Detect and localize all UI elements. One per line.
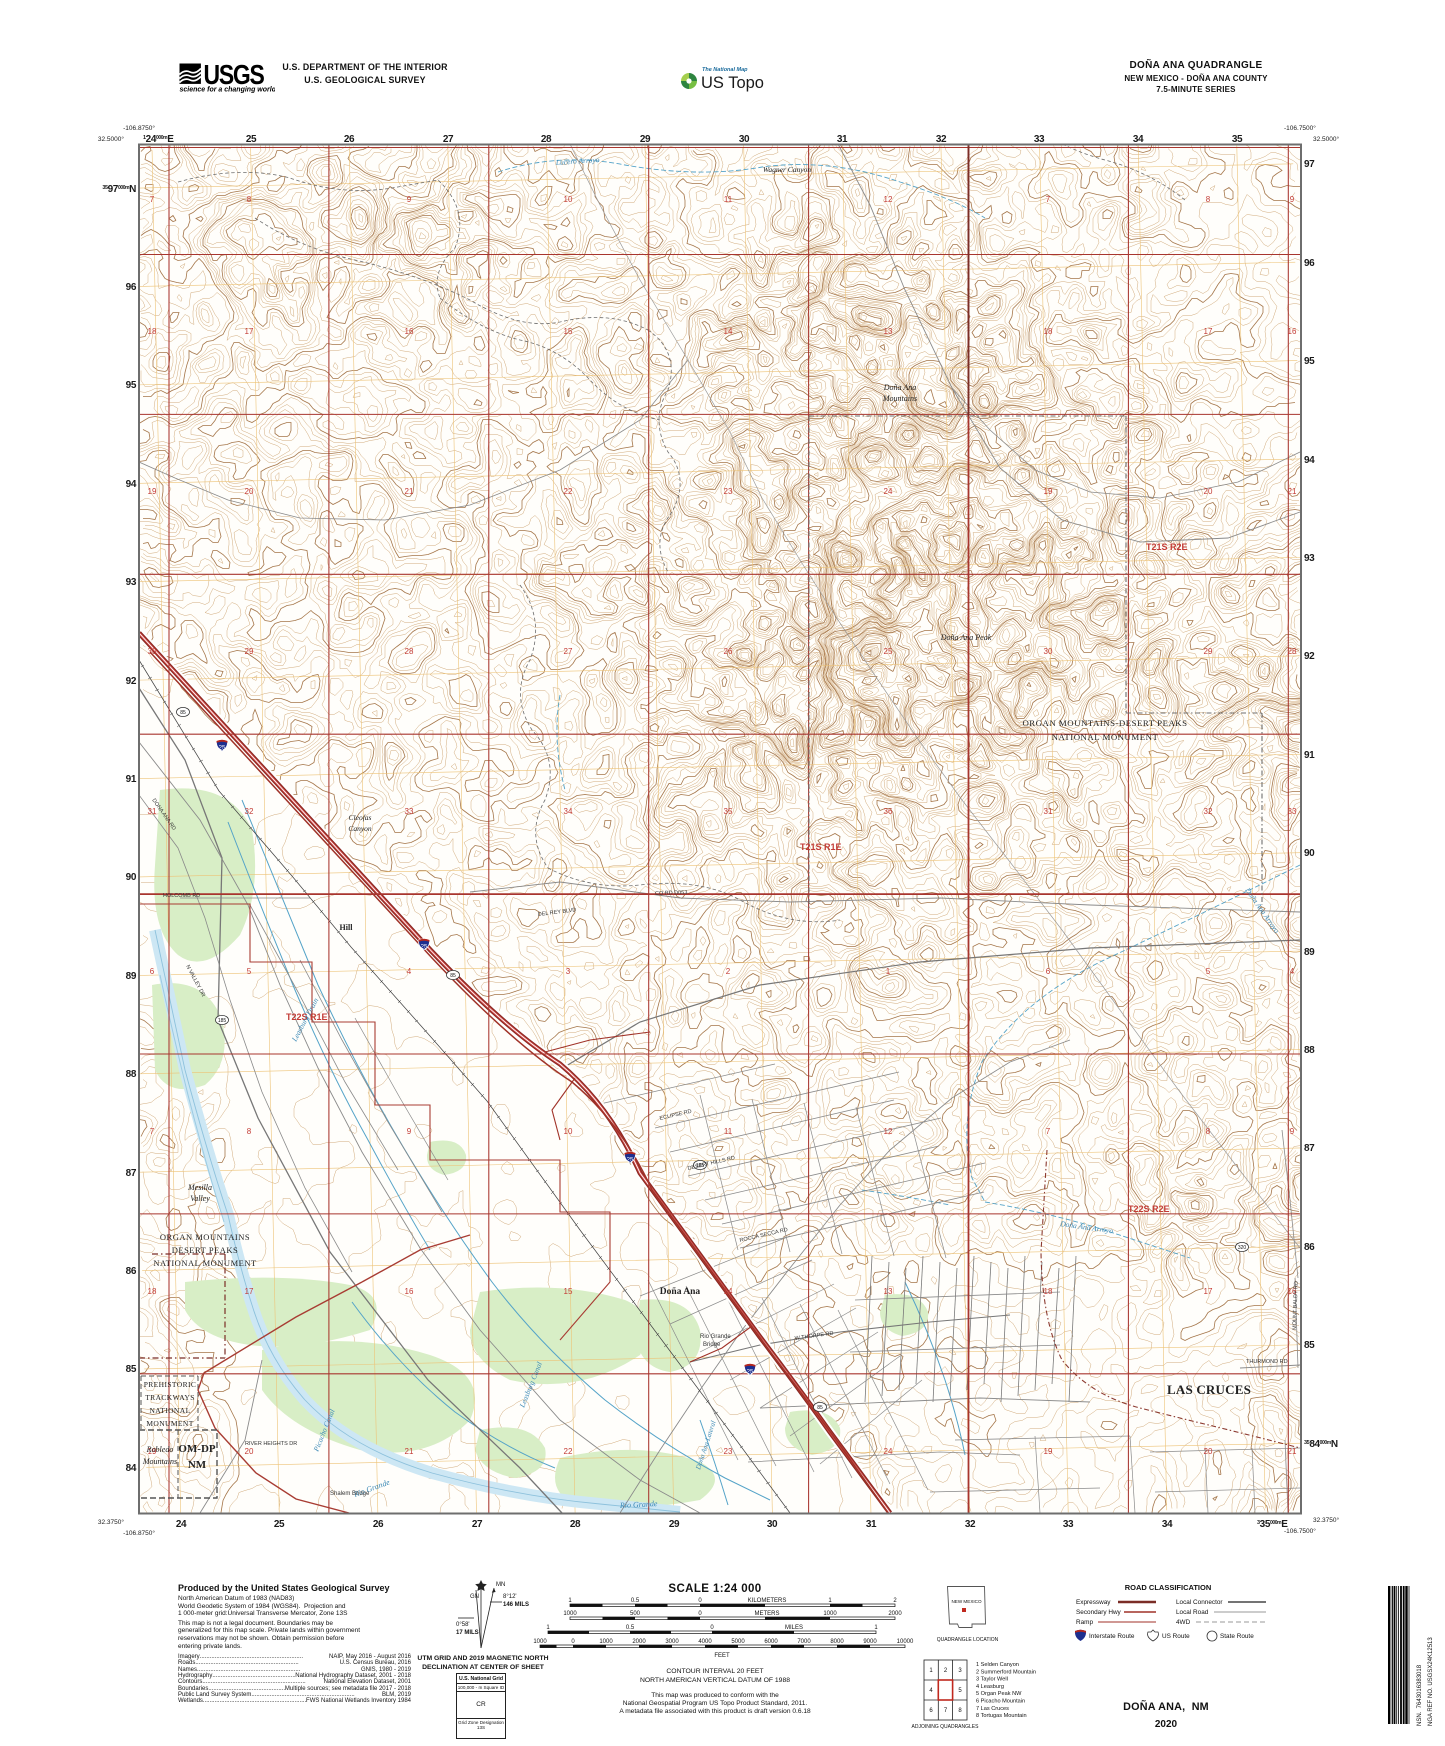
svg-text:1: 1 <box>874 1625 878 1631</box>
svg-text:OM-DP: OM-DP <box>178 1443 216 1455</box>
svg-text:24: 24 <box>884 487 893 496</box>
svg-text:2 Summerford Mountain: 2 Summerford Mountain <box>976 1669 1036 1675</box>
svg-text:11: 11 <box>724 195 733 204</box>
svg-text:5: 5 <box>247 967 252 976</box>
svg-text:Shalem Bridge: Shalem Bridge <box>330 1491 370 1497</box>
svg-text:27: 27 <box>472 1519 483 1530</box>
svg-text:9: 9 <box>407 195 412 204</box>
svg-text:7 Las Cruces: 7 Las Cruces <box>976 1706 1009 1712</box>
svg-text:8: 8 <box>1206 1127 1211 1136</box>
svg-text:35: 35 <box>724 807 733 816</box>
svg-text:9: 9 <box>1290 1127 1295 1136</box>
svg-text:Secondary Hwy: Secondary Hwy <box>1076 1609 1122 1616</box>
svg-text:16: 16 <box>405 327 414 336</box>
svg-text:1: 1 <box>568 1598 572 1604</box>
svg-text:Mesilla: Mesilla <box>187 1183 212 1192</box>
svg-text:TRACKWAYS: TRACKWAYS <box>145 1393 195 1402</box>
svg-text:0.5: 0.5 <box>631 1598 640 1604</box>
svg-text:8°12': 8°12' <box>503 1594 517 1600</box>
svg-text:NSN. 7643016383018: NSN. 7643016383018 <box>1417 1664 1423 1726</box>
svg-text:GN: GN <box>470 1594 479 1600</box>
svg-text:28: 28 <box>1288 647 1297 656</box>
svg-text:4: 4 <box>407 967 412 976</box>
svg-text:10000: 10000 <box>897 1639 914 1645</box>
svg-text:21: 21 <box>1288 1447 1297 1456</box>
svg-text:MN: MN <box>496 1582 505 1588</box>
svg-text:17 MILS: 17 MILS <box>456 1630 479 1636</box>
svg-text:17: 17 <box>1204 327 1213 336</box>
svg-text:4WD: 4WD <box>1176 1619 1191 1626</box>
svg-text:10: 10 <box>564 1127 573 1136</box>
svg-text:6000: 6000 <box>764 1639 778 1645</box>
svg-text:22: 22 <box>564 1447 573 1456</box>
svg-text:500: 500 <box>630 1611 641 1617</box>
svg-text:85: 85 <box>180 710 186 716</box>
svg-text:-106.8750°: -106.8750° <box>123 124 155 132</box>
svg-text:86: 86 <box>1304 1242 1315 1253</box>
svg-text:HOLCOMB RD: HOLCOMB RD <box>163 893 200 899</box>
svg-text:30: 30 <box>1044 647 1053 656</box>
svg-text:19: 19 <box>148 487 157 496</box>
svg-text:7000: 7000 <box>797 1639 811 1645</box>
svg-text:31: 31 <box>866 1519 877 1530</box>
svg-text:FEET: FEET <box>714 1653 730 1659</box>
svg-text:32.3750°: 32.3750° <box>1313 1516 1339 1524</box>
svg-text:20: 20 <box>1204 1447 1213 1456</box>
svg-text:1: 1 <box>929 1668 933 1674</box>
svg-text:88: 88 <box>1304 1045 1315 1056</box>
svg-text:84: 84 <box>126 1463 137 1474</box>
svg-text:4 Leasburg: 4 Leasburg <box>976 1684 1004 1690</box>
svg-text:0: 0 <box>571 1639 575 1645</box>
svg-text:320: 320 <box>1238 1245 1247 1251</box>
svg-text:0.5: 0.5 <box>626 1625 635 1631</box>
svg-text:1: 1 <box>886 967 891 976</box>
svg-text:33: 33 <box>1063 1519 1074 1530</box>
svg-text:87: 87 <box>1304 1143 1315 1154</box>
svg-text:Canyon: Canyon <box>348 824 372 833</box>
svg-text:94: 94 <box>126 479 137 490</box>
svg-text:23: 23 <box>724 487 733 496</box>
svg-text:146 MILS: 146 MILS <box>503 1602 529 1608</box>
svg-text:96: 96 <box>1304 258 1315 269</box>
svg-text:24: 24 <box>176 1519 187 1530</box>
svg-text:0: 0 <box>710 1625 714 1631</box>
svg-text:5000: 5000 <box>731 1639 745 1645</box>
svg-text:-106.7500°: -106.7500° <box>1284 1527 1316 1535</box>
svg-text:15: 15 <box>564 1287 573 1296</box>
svg-text:90: 90 <box>126 872 137 883</box>
svg-text:8: 8 <box>958 1708 962 1714</box>
svg-text:13: 13 <box>884 1287 893 1296</box>
svg-text:ORGAN MOUNTAINS: ORGAN MOUNTAINS <box>160 1232 250 1242</box>
svg-text:1 Selden Canyon: 1 Selden Canyon <box>976 1662 1019 1668</box>
svg-text:16: 16 <box>405 1287 414 1296</box>
svg-text:T21S R1E: T21S R1E <box>800 842 842 852</box>
svg-text:124000mE: 124000mE <box>143 134 174 145</box>
svg-text:1000: 1000 <box>533 1639 547 1645</box>
svg-text:17: 17 <box>245 1287 254 1296</box>
svg-text:34: 34 <box>564 807 573 816</box>
svg-text:23: 23 <box>724 1447 733 1456</box>
svg-text:Expressway: Expressway <box>1076 1599 1111 1606</box>
svg-text:7: 7 <box>1046 195 1051 204</box>
svg-text:11: 11 <box>724 1127 733 1136</box>
svg-text:85: 85 <box>1304 1340 1315 1351</box>
svg-text:8: 8 <box>1206 195 1211 204</box>
svg-text:26: 26 <box>724 647 733 656</box>
svg-text:14: 14 <box>724 1287 733 1296</box>
svg-text:185: 185 <box>218 1018 227 1024</box>
svg-text:T22S R2E: T22S R2E <box>1128 1204 1170 1214</box>
svg-text:-106.8750°: -106.8750° <box>123 1529 155 1537</box>
svg-text:88: 88 <box>126 1069 137 1080</box>
svg-text:30: 30 <box>739 134 750 145</box>
svg-text:5: 5 <box>1206 967 1211 976</box>
svg-text:31: 31 <box>837 134 848 145</box>
svg-text:3: 3 <box>958 1668 962 1674</box>
svg-text:32.5000°: 32.5000° <box>1313 135 1339 143</box>
svg-text:97: 97 <box>1304 159 1315 170</box>
svg-text:Hill: Hill <box>340 923 354 932</box>
svg-text:Valley: Valley <box>190 1194 210 1203</box>
svg-text:NATIONAL MONUMENT: NATIONAL MONUMENT <box>153 1258 257 1268</box>
svg-text:22: 22 <box>564 487 573 496</box>
svg-text:25: 25 <box>747 1370 754 1376</box>
svg-text:85: 85 <box>450 973 456 979</box>
svg-text:25: 25 <box>421 945 428 951</box>
svg-text:1: 1 <box>828 1598 832 1604</box>
svg-text:95: 95 <box>1304 356 1315 367</box>
svg-text:12: 12 <box>884 1127 893 1136</box>
svg-text:6: 6 <box>929 1708 933 1714</box>
svg-text:3 Taylor Well: 3 Taylor Well <box>976 1677 1008 1683</box>
svg-text:RIVER HEIGHTS DR: RIVER HEIGHTS DR <box>245 1441 297 1447</box>
svg-text:93: 93 <box>1304 553 1315 564</box>
svg-text:35: 35 <box>1232 134 1243 145</box>
svg-text:Rio Grande: Rio Grande <box>700 1334 731 1340</box>
svg-text:Doña Ana: Doña Ana <box>883 383 917 392</box>
svg-text:Bridge: Bridge <box>703 1342 721 1348</box>
svg-text:9: 9 <box>407 1127 412 1136</box>
svg-text:8000: 8000 <box>830 1639 844 1645</box>
svg-text:21: 21 <box>405 487 414 496</box>
svg-text:32.5000°: 32.5000° <box>98 135 124 143</box>
svg-text:29: 29 <box>1204 647 1213 656</box>
svg-text:Ramp: Ramp <box>1076 1619 1093 1626</box>
svg-text:32.3750°: 32.3750° <box>98 1518 124 1526</box>
svg-text:18: 18 <box>1044 1287 1053 1296</box>
svg-text:29: 29 <box>669 1519 680 1530</box>
svg-text:34: 34 <box>1133 134 1144 145</box>
svg-text:89: 89 <box>1304 947 1315 958</box>
svg-text:6 Picacho Mountain: 6 Picacho Mountain <box>976 1699 1025 1705</box>
svg-text:7: 7 <box>150 195 155 204</box>
svg-text:16: 16 <box>1288 327 1297 336</box>
svg-text:7: 7 <box>944 1708 948 1714</box>
svg-text:92: 92 <box>126 676 137 687</box>
svg-text:3597000mN: 3597000mN <box>102 184 136 195</box>
svg-text:MILES: MILES <box>785 1625 803 1631</box>
svg-text:32: 32 <box>965 1519 976 1530</box>
svg-text:29: 29 <box>640 134 651 145</box>
svg-text:9000: 9000 <box>863 1639 877 1645</box>
svg-text:24: 24 <box>884 1447 893 1456</box>
svg-text:17: 17 <box>1204 1287 1213 1296</box>
svg-text:32: 32 <box>1204 807 1213 816</box>
svg-text:PREHISTORIC: PREHISTORIC <box>144 1380 197 1389</box>
svg-text:33: 33 <box>1288 807 1297 816</box>
svg-text:KILOMETERS: KILOMETERS <box>748 1598 787 1604</box>
svg-text:THURMOND RD: THURMOND RD <box>1246 1359 1288 1365</box>
svg-text:LAS CRUCES: LAS CRUCES <box>1167 1382 1251 1397</box>
svg-text:T21S R2E: T21S R2E <box>1146 542 1188 552</box>
svg-text:17: 17 <box>245 327 254 336</box>
svg-text:Wagner Canyon: Wagner Canyon <box>763 165 812 174</box>
svg-text:21: 21 <box>405 1447 414 1456</box>
svg-text:Interstate Route: Interstate Route <box>1089 1633 1135 1640</box>
svg-text:1000: 1000 <box>823 1611 837 1617</box>
svg-text:1000: 1000 <box>563 1611 577 1617</box>
svg-text:25: 25 <box>274 1519 285 1530</box>
svg-text:25: 25 <box>219 746 226 752</box>
svg-text:8: 8 <box>247 1127 252 1136</box>
svg-text:18: 18 <box>148 327 157 336</box>
svg-text:7: 7 <box>150 1127 155 1136</box>
svg-text:20: 20 <box>1204 487 1213 496</box>
svg-text:0°58': 0°58' <box>456 1622 470 1628</box>
svg-text:93: 93 <box>126 577 137 588</box>
svg-text:0: 0 <box>698 1598 702 1604</box>
svg-text:32: 32 <box>245 807 254 816</box>
svg-text:MONUMENT: MONUMENT <box>146 1419 193 1428</box>
svg-text:33: 33 <box>405 807 414 816</box>
svg-text:18: 18 <box>148 1287 157 1296</box>
svg-text:Mountains: Mountains <box>882 394 917 403</box>
svg-text:27: 27 <box>564 647 573 656</box>
svg-text:2: 2 <box>893 1598 897 1604</box>
svg-text:3000: 3000 <box>665 1639 679 1645</box>
svg-text:3: 3 <box>566 967 571 976</box>
svg-text:12: 12 <box>884 195 893 204</box>
svg-text:Doña Ana: Doña Ana <box>660 1287 701 1297</box>
svg-text:DESERT PEAKS: DESERT PEAKS <box>172 1245 239 1255</box>
svg-text:20: 20 <box>245 487 254 496</box>
svg-text:2: 2 <box>944 1668 948 1674</box>
svg-text:ADJOINING QUADRANGLES: ADJOINING QUADRANGLES <box>912 1724 980 1730</box>
svg-text:92: 92 <box>1304 651 1315 662</box>
svg-text:3584000mN: 3584000mN <box>1304 1439 1338 1450</box>
svg-text:91: 91 <box>126 774 137 785</box>
svg-text:5 Organ Peak NW: 5 Organ Peak NW <box>976 1691 1022 1697</box>
svg-text:29: 29 <box>245 647 254 656</box>
svg-text:ORGAN MOUNTAINS-DESERT PEAKS: ORGAN MOUNTAINS-DESERT PEAKS <box>1022 718 1187 728</box>
svg-text:87: 87 <box>126 1168 137 1179</box>
svg-text:13: 13 <box>884 327 893 336</box>
svg-text:14: 14 <box>724 327 733 336</box>
svg-text:4000: 4000 <box>698 1639 712 1645</box>
svg-text:28: 28 <box>570 1519 581 1530</box>
svg-text:30: 30 <box>148 647 157 656</box>
svg-text:8 Tortugas Mountain: 8 Tortugas Mountain <box>976 1713 1027 1719</box>
svg-text:85: 85 <box>126 1364 137 1375</box>
svg-text:15: 15 <box>564 327 573 336</box>
svg-text:91: 91 <box>1304 750 1315 761</box>
svg-text:33: 33 <box>1034 134 1045 145</box>
svg-text:20: 20 <box>245 1447 254 1456</box>
svg-text:85: 85 <box>817 1405 823 1411</box>
svg-text:25: 25 <box>884 647 893 656</box>
svg-text:26: 26 <box>373 1519 384 1530</box>
svg-text:1: 1 <box>546 1625 550 1631</box>
svg-text:21: 21 <box>1288 487 1297 496</box>
svg-text:2000: 2000 <box>632 1639 646 1645</box>
svg-text:Local Connector: Local Connector <box>1176 1599 1223 1606</box>
svg-text:0: 0 <box>698 1611 702 1617</box>
svg-text:96: 96 <box>126 282 137 293</box>
svg-text:NATIONAL MONUMENT: NATIONAL MONUMENT <box>1052 732 1159 742</box>
svg-text:-106.7500°: -106.7500° <box>1284 124 1316 132</box>
svg-text:36: 36 <box>884 807 893 816</box>
svg-text:4: 4 <box>1290 967 1295 976</box>
svg-text:5: 5 <box>958 1688 962 1694</box>
svg-text:89: 89 <box>126 971 137 982</box>
svg-text:25: 25 <box>627 1158 634 1164</box>
svg-text:34: 34 <box>1162 1519 1173 1530</box>
svg-text:NATIONAL: NATIONAL <box>149 1406 190 1415</box>
svg-text:90: 90 <box>1304 848 1315 859</box>
svg-text:4: 4 <box>929 1688 933 1694</box>
svg-text:CO RD D053: CO RD D053 <box>655 890 688 897</box>
svg-text:2: 2 <box>726 967 731 976</box>
svg-text:2000: 2000 <box>888 1611 902 1617</box>
svg-text:95: 95 <box>126 380 137 391</box>
svg-text:31: 31 <box>1044 807 1053 816</box>
svg-text:Robledo: Robledo <box>146 1445 174 1454</box>
svg-text:10: 10 <box>564 195 573 204</box>
svg-text:30: 30 <box>767 1519 778 1530</box>
svg-text:8: 8 <box>247 195 252 204</box>
svg-text:Local Road: Local Road <box>1176 1609 1209 1616</box>
svg-text:19: 19 <box>1044 1447 1053 1456</box>
svg-text:7: 7 <box>1046 1127 1051 1136</box>
svg-text:NM: NM <box>188 1459 207 1471</box>
svg-text:18: 18 <box>1044 327 1053 336</box>
svg-text:28: 28 <box>405 647 414 656</box>
svg-text:27: 27 <box>443 134 454 145</box>
svg-text:25: 25 <box>246 134 257 145</box>
svg-text:Doña Ana Peak: Doña Ana Peak <box>940 633 992 642</box>
svg-text:Cleofas: Cleofas <box>349 813 372 822</box>
svg-text:Mountains: Mountains <box>142 1457 177 1466</box>
svg-text:1000: 1000 <box>599 1639 613 1645</box>
svg-text:32: 32 <box>936 134 947 145</box>
svg-text:6: 6 <box>1046 967 1051 976</box>
svg-text:NGA REF NO. USGSX24K12513: NGA REF NO. USGSX24K12513 <box>1428 1637 1434 1726</box>
svg-text:6: 6 <box>150 967 155 976</box>
svg-text:86: 86 <box>126 1266 137 1277</box>
svg-text:9: 9 <box>1290 195 1295 204</box>
svg-text:State Route: State Route <box>1220 1633 1254 1640</box>
svg-text:28: 28 <box>541 134 552 145</box>
svg-text:19: 19 <box>1044 487 1053 496</box>
svg-text:94: 94 <box>1304 455 1315 466</box>
svg-text:US Route: US Route <box>1162 1633 1190 1640</box>
svg-text:NEW MEXICO: NEW MEXICO <box>951 1599 982 1604</box>
svg-text:26: 26 <box>344 134 355 145</box>
svg-text:METERS: METERS <box>754 1611 779 1617</box>
